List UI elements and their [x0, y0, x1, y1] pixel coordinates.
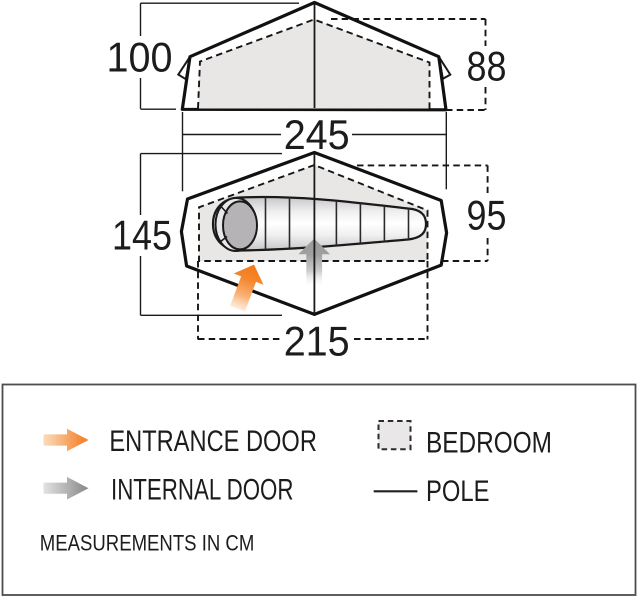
svg-text:MEASUREMENTS IN CM: MEASUREMENTS IN CM: [40, 531, 255, 556]
svg-text:145: 145: [112, 211, 172, 258]
svg-text:95: 95: [467, 192, 507, 239]
svg-text:245: 245: [284, 111, 350, 158]
svg-text:88: 88: [467, 43, 507, 90]
svg-text:ENTRANCE DOOR: ENTRANCE DOOR: [109, 425, 317, 458]
svg-text:215: 215: [284, 318, 350, 365]
svg-text:POLE: POLE: [426, 475, 490, 508]
svg-text:INTERNAL DOOR: INTERNAL DOOR: [111, 473, 294, 506]
svg-text:BEDROOM: BEDROOM: [426, 426, 552, 459]
svg-text:100: 100: [107, 34, 173, 81]
